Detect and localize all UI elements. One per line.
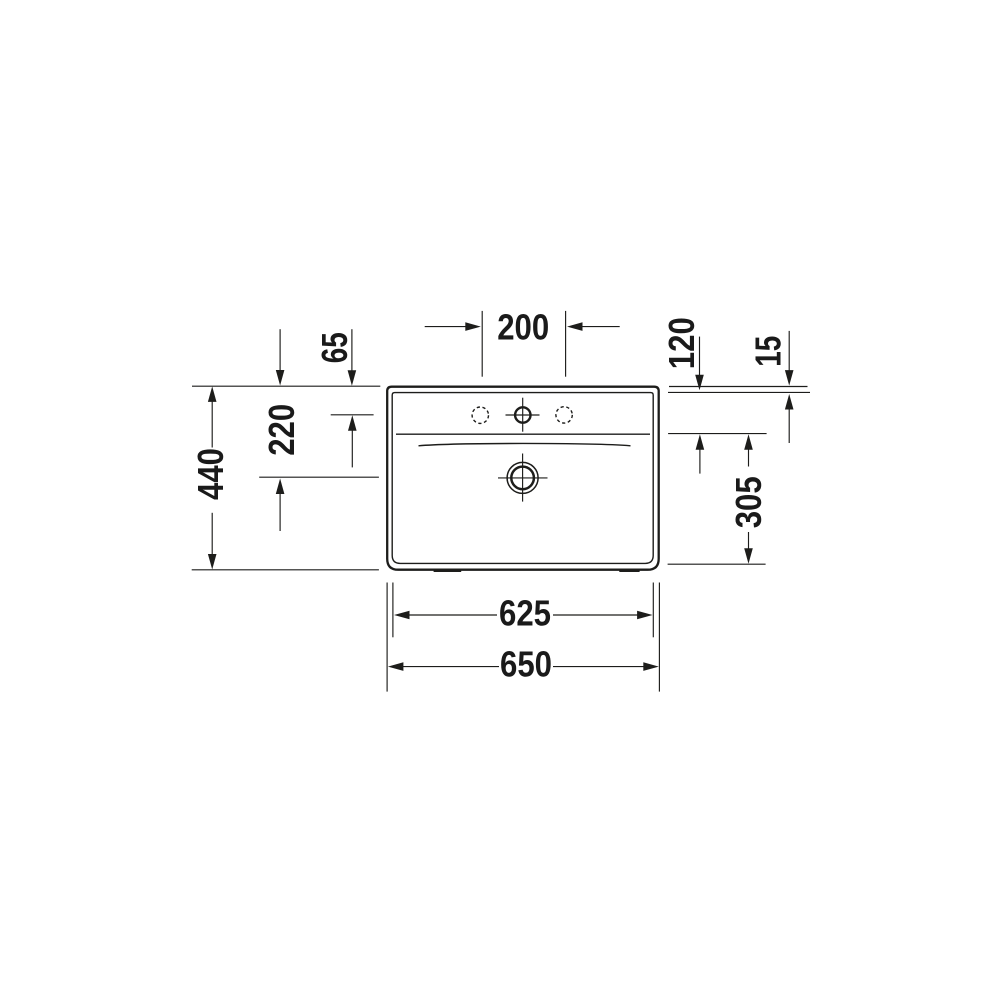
svg-text:305: 305 <box>728 476 769 528</box>
svg-text:200: 200 <box>497 307 549 348</box>
svg-text:625: 625 <box>499 592 551 633</box>
svg-text:650: 650 <box>500 644 552 685</box>
svg-text:65: 65 <box>314 332 355 363</box>
svg-text:120: 120 <box>661 317 702 369</box>
svg-text:220: 220 <box>261 404 302 456</box>
svg-text:440: 440 <box>190 448 231 500</box>
svg-text:15: 15 <box>747 336 788 367</box>
